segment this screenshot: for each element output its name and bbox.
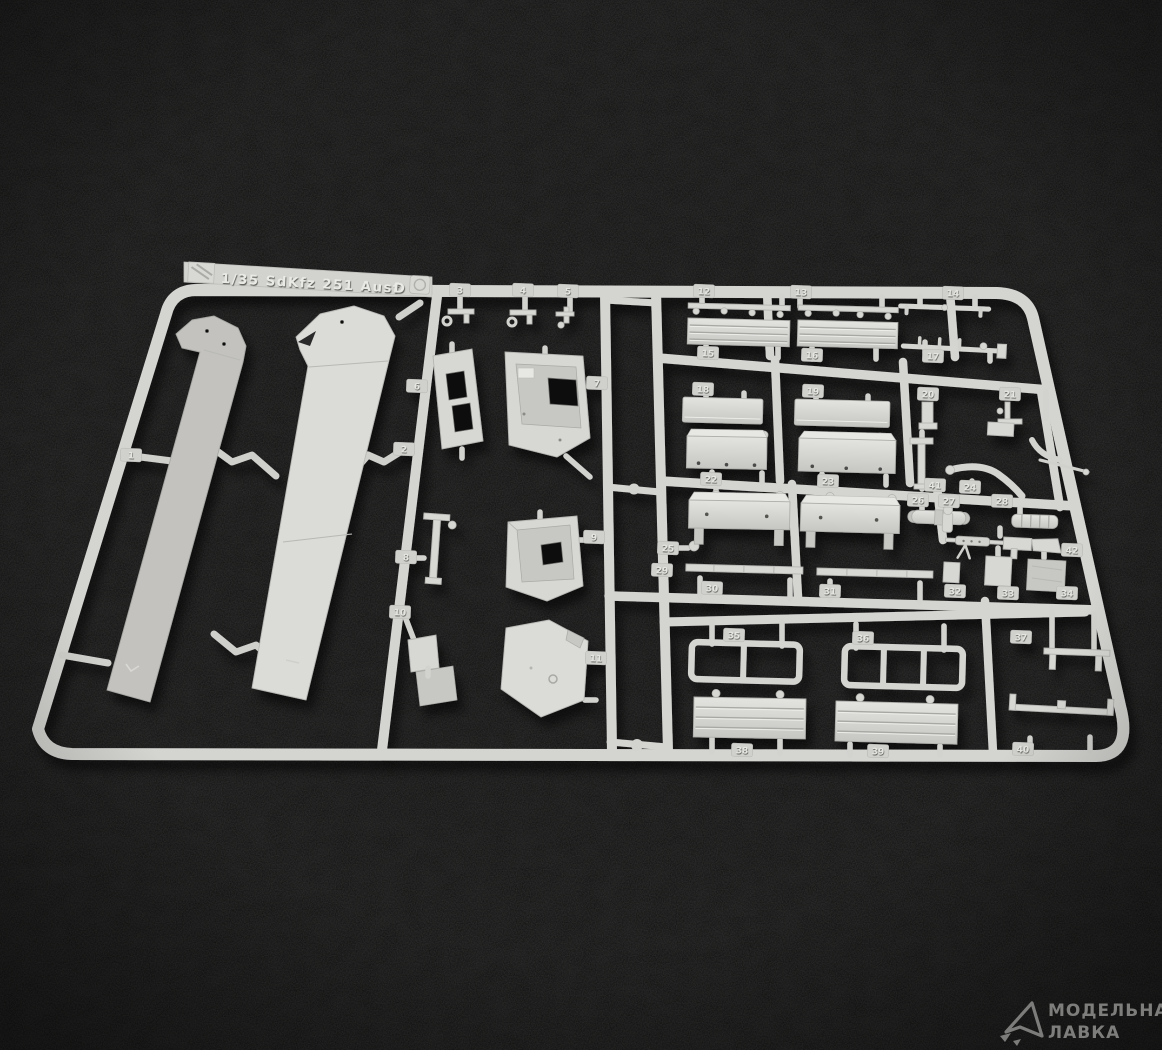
watermark-line2: ЛАВКА [1048,1023,1120,1043]
photo-vignette [0,0,1162,1050]
sprue-photo-canvas: 1/35 SdKfz 251 Ausf D [0,0,1162,1050]
photo-model-kit-sprue: 1/35 SdKfz 251 Ausf D [0,0,1162,1050]
watermark-line1: МОДЕЛЬНАЯ [1048,1001,1162,1021]
